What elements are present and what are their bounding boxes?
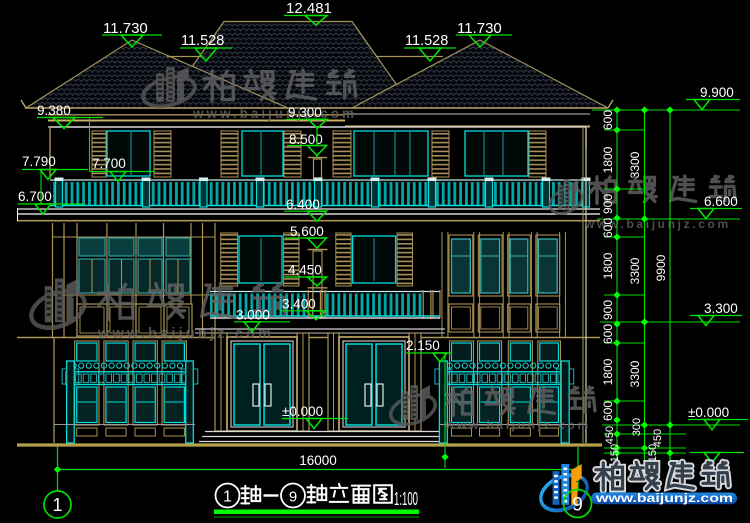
svg-text:3.400: 3.400 [282, 297, 316, 312]
svg-text:3300: 3300 [628, 360, 642, 387]
svg-text:3300: 3300 [628, 257, 642, 284]
svg-text:3300: 3300 [628, 151, 642, 178]
svg-text:900: 900 [601, 300, 615, 320]
svg-text:150: 150 [609, 444, 621, 462]
svg-text:5.600: 5.600 [290, 224, 324, 239]
svg-text:9: 9 [572, 495, 583, 516]
svg-text:6.400: 6.400 [286, 197, 320, 212]
svg-text:www.baijunjz.com: www.baijunjz.com [444, 418, 591, 432]
svg-text:www.baijunjz.com: www.baijunjz.com [97, 326, 274, 342]
svg-text:7.700: 7.700 [92, 156, 126, 171]
svg-text:12.481: 12.481 [286, 0, 332, 17]
svg-text:www.baijunjz.com: www.baijunjz.com [192, 106, 357, 121]
svg-text:900: 900 [601, 194, 615, 214]
svg-text:1800: 1800 [601, 146, 615, 173]
svg-text:1:100: 1:100 [394, 489, 418, 509]
svg-text:±0.000: ±0.000 [282, 404, 323, 419]
svg-text:7.790: 7.790 [22, 154, 56, 169]
svg-text:11.528: 11.528 [405, 33, 448, 49]
svg-text:16000: 16000 [299, 453, 337, 468]
svg-text:1: 1 [52, 495, 62, 515]
svg-text:3.300: 3.300 [704, 301, 738, 316]
svg-text:6.600: 6.600 [704, 194, 738, 209]
svg-text:6.700: 6.700 [18, 189, 52, 204]
svg-text:±0.000: ±0.000 [688, 405, 729, 420]
svg-text:4.450: 4.450 [288, 263, 322, 278]
svg-text:9.900: 9.900 [700, 85, 734, 100]
svg-text:300: 300 [631, 418, 643, 436]
svg-text:11.528: 11.528 [181, 33, 224, 49]
svg-text:2.150: 2.150 [406, 338, 440, 353]
svg-text:9900: 9900 [654, 254, 668, 281]
svg-text:1800: 1800 [601, 252, 615, 279]
svg-text:600: 600 [601, 110, 615, 130]
svg-text:600: 600 [601, 401, 615, 421]
svg-text:9.300: 9.300 [288, 105, 322, 120]
svg-text:9.380: 9.380 [37, 103, 71, 118]
svg-text:www.baijunjz.com: www.baijunjz.com [595, 493, 733, 505]
svg-text:9: 9 [289, 489, 297, 506]
svg-text:150: 150 [647, 444, 659, 462]
svg-text:3.000: 3.000 [236, 308, 270, 323]
svg-text:1800: 1800 [601, 358, 615, 385]
svg-text:1: 1 [223, 489, 232, 506]
svg-text:450: 450 [604, 426, 616, 444]
svg-text:600: 600 [601, 218, 615, 238]
svg-text:600: 600 [601, 324, 615, 344]
